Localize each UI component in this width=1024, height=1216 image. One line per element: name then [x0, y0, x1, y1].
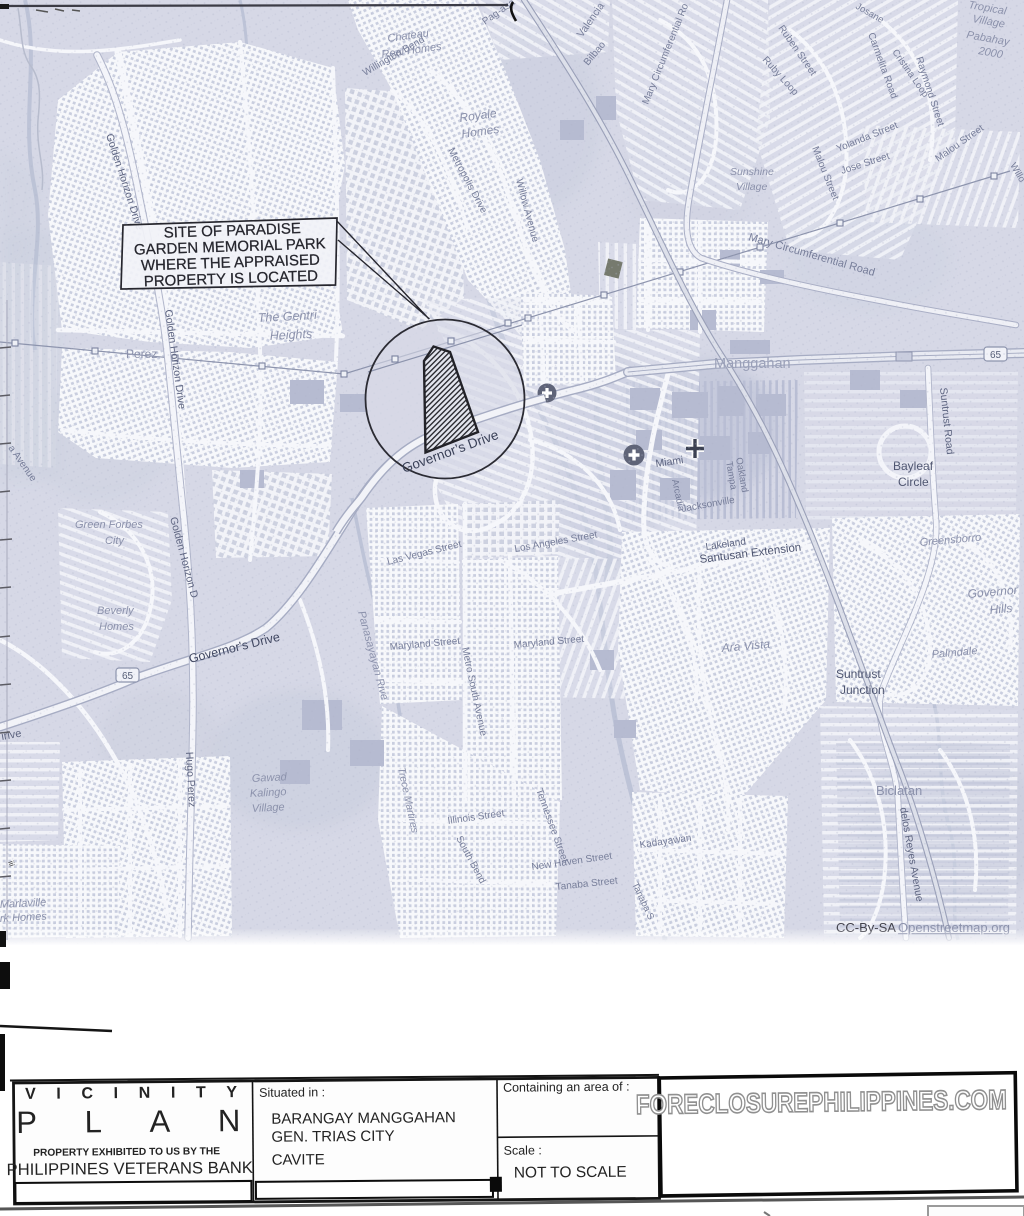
svg-text:Situated in :: Situated in : [259, 1085, 325, 1100]
svg-text:NOT TO SCALE: NOT TO SCALE [514, 1164, 627, 1182]
svg-text:FORECLOSUREPHILIPPINES.COM: FORECLOSUREPHILIPPINES.COM [636, 1084, 1007, 1120]
svg-text:Scale :: Scale : [504, 1143, 542, 1157]
svg-text:CAVITE: CAVITE [272, 1151, 325, 1168]
svg-text:GEN. TRIAS CITY: GEN. TRIAS CITY [271, 1128, 394, 1146]
svg-text:BARANGAY MANGGAHAN: BARANGAY MANGGAHAN [271, 1109, 456, 1128]
svg-text:PHILIPPINES VETERANS BANK: PHILIPPINES VETERANS BANK [7, 1158, 253, 1179]
svg-text:PROPERTY EXHIBITED TO US BY TH: PROPERTY EXHIBITED TO US BY THE [33, 1146, 220, 1159]
svg-text:Containing an area of :: Containing an area of : [503, 1080, 630, 1095]
